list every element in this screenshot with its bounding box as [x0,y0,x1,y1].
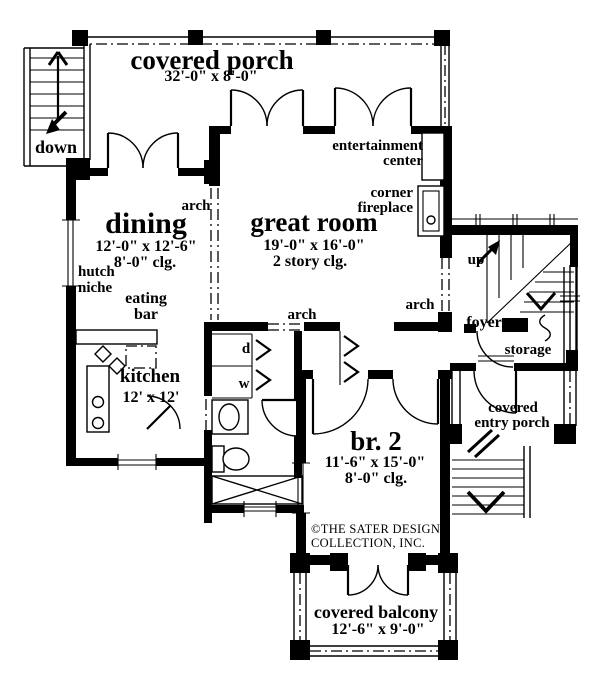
hutch-niche-label-2: niche [78,281,112,296]
floor-plan: covered porch 32'-0" x 8'-0" down dining… [0,0,600,698]
room-ceiling-br2: 8'-0" clg. [345,471,407,487]
entertainment-center-label-1: entertainment [332,139,423,154]
washer-label: w [239,377,250,392]
room-ceiling-dining: 8'-0" clg. [114,255,176,271]
room-label-entry-porch-2: entry porch [474,416,549,431]
stairs-up-icon [452,214,578,361]
room-dims-br2: 11'-6" x 15'-0" [325,455,425,471]
stairs-down-label: down [35,138,77,156]
room-dims-kitchen: 12' x 12' [123,390,180,406]
dryer-label: d [242,342,250,357]
arch-label-dining: arch [182,199,211,214]
room-dims-dining: 12'-0" x 12'-6" [95,239,196,255]
eating-bar-label-1: eating [125,291,167,307]
room-label-dining: dining [105,209,187,239]
eating-bar-label-2: bar [134,307,158,323]
hutch-niche-label-1: hutch [78,265,115,280]
entertainment-center-label-2: center [383,154,423,169]
copyright-line-2: COLLECTION, INC. [311,537,425,550]
arch-label-foyer: arch [406,298,435,313]
room-ceiling-great-room: 2 story clg. [273,254,347,270]
room-label-kitchen: kitchen [120,367,180,386]
copyright-line-1: ©THE SATER DESIGN [311,523,440,536]
room-label-foyer: foyer [466,315,502,331]
door-swing-icons [108,88,516,595]
arch-label-hall: arch [288,308,317,323]
room-dims-covered-balcony: 12'-6" x 9'-0" [331,622,424,638]
room-label-br2: br. 2 [350,428,402,455]
corner-fireplace-label-2: fireplace [357,201,413,216]
room-label-covered-balcony: covered balcony [314,603,438,621]
room-dims-great-room: 19'-0" x 16'-0" [263,238,364,254]
stairs-up-label: up [468,253,485,268]
room-label-entry-porch-1: covered [488,401,538,416]
corner-fireplace-label-1: corner [371,186,413,201]
room-label-storage: storage [505,343,552,358]
room-dims-covered-porch: 32'-0" x 8'-0" [164,69,257,85]
